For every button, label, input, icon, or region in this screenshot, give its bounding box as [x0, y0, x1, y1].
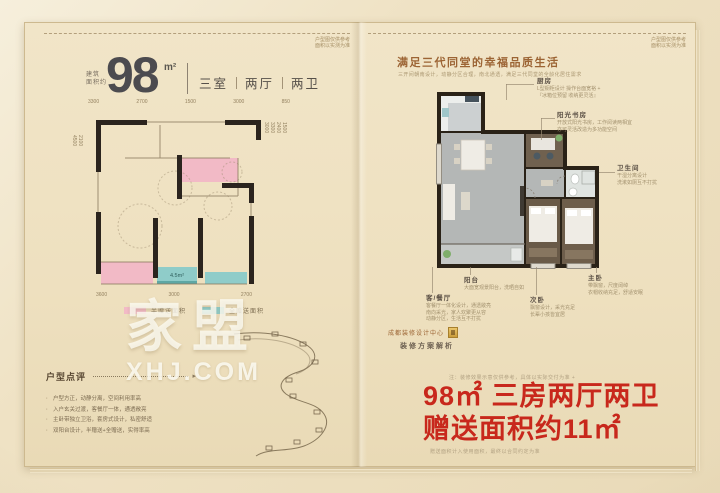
- gift-area-teal-right: [205, 272, 247, 284]
- page-crease: [351, 22, 367, 467]
- rooms-spec-baths: 两卫: [291, 73, 320, 92]
- left-page-top-rule: [44, 33, 350, 34]
- header-divider: [187, 63, 188, 94]
- area-prefix: 建筑 面积约: [86, 72, 107, 87]
- review-point: 双阳台设计，半赠送+全赠送，实得率高: [46, 426, 246, 437]
- area-unit: m²: [164, 62, 176, 73]
- seal-text: 成都装修设计中心: [388, 328, 444, 337]
- promo-line1: 98㎡ 三房两厅两卫: [423, 381, 660, 411]
- right-page-top-rule: [368, 33, 686, 34]
- rooms-spec-sep: [236, 77, 237, 89]
- callout-living-line: 动静分区，生活互不打扰: [426, 316, 491, 323]
- review-title: 户型点评: [46, 370, 86, 383]
- promo-footnote: 赠送面积计入使用面积，最终以合同约定为准: [430, 448, 540, 455]
- legend-label-half: 半赠送面积: [151, 306, 186, 315]
- legend-label-full: 全赠送面积: [229, 306, 264, 315]
- legend-swatch-pink: [124, 307, 146, 314]
- callout-second: 次卧 飘窗设计，采光充足 长辈小孩皆宜居: [530, 297, 575, 318]
- leader-bath: [599, 172, 615, 173]
- dim-top-3: 3000: [233, 99, 244, 105]
- callout-second-line: 飘窗设计，采光充足: [530, 305, 575, 312]
- callout-living: 客/餐厅 客餐厅一体化设计，通透敞亮 南向采光，家人欢聚更从容 动静分区，生活互…: [426, 295, 491, 323]
- callout-bath-name: 卫生间: [617, 165, 657, 173]
- right-page-note-line2: 面积以实测为准: [560, 43, 686, 49]
- gift-area-pink-balcony: [101, 262, 153, 284]
- window-lines: [98, 122, 251, 284]
- callout-master: 主卧 带飘窗，尺度阔绰 衣帽收纳充足，舒适安眠: [588, 275, 643, 296]
- legend-item-half: 半赠送面积: [124, 306, 186, 315]
- arrow-icon: ▸: [192, 373, 196, 380]
- callout-bath-line: 洗漱如厕互不打扰: [617, 180, 657, 187]
- callout-balcony: 阳台 大面宽观景阳台，洗晒自如: [464, 277, 524, 292]
- dim-left-1: 4500: [71, 135, 77, 255]
- legend-item-full: 全赠送面积: [202, 306, 264, 315]
- review-header: 户型点评 ▸: [46, 370, 196, 383]
- rooms-spec-halls: 两厅: [245, 73, 274, 92]
- gift-legend: 半赠送面积 全赠送面积: [124, 306, 264, 315]
- seal-row: 成都装修设计中心: [388, 327, 458, 338]
- note-above-promo: 注：装修效果示意仅供参考，具体以实际交付为准 +: [449, 374, 575, 381]
- callout-second-name: 次卧: [530, 297, 575, 305]
- callout-study-name: 阳光书房: [557, 112, 632, 120]
- callout-balcony-line: 大面宽观景阳台，洗晒自如: [464, 285, 524, 292]
- dim-top-1: 2700: [136, 99, 147, 105]
- callout-study: 阳光书房 开放式阳光书房，工作阅读两相宜 亦可灵活改造为多功能空间: [557, 112, 632, 133]
- left-page-note: 户型图仅供参考 面积以实测为准: [200, 37, 350, 49]
- brochure-photo: 户型图仅供参考 面积以实测为准 建筑 面积约 98 m² 三室 两厅 两卫 33…: [0, 0, 720, 493]
- callout-bath: 卫生间 干湿分离设计 洗漱如厕互不打扰: [617, 165, 657, 186]
- leader-study: [541, 118, 542, 140]
- dim-top-2: 1500: [185, 99, 196, 105]
- area-value: 98: [106, 50, 158, 100]
- review-point: 入户玄关过渡，客餐厅一体，通透敞亮: [46, 405, 246, 416]
- dim-top-0: 3300: [88, 99, 99, 105]
- callout-study-line: 开放式阳光书房，工作阅读两相宜: [557, 120, 632, 127]
- site-map-sketch: [224, 328, 340, 460]
- dims-top: 3300 2700 1500 3000 850: [88, 99, 290, 105]
- leader-master: [596, 267, 597, 273]
- callout-living-name: 客/餐厅: [426, 295, 491, 303]
- gift-area-pink-upper: [182, 158, 238, 182]
- furnished-floorplan: [423, 80, 613, 275]
- callout-study-line: 亦可灵活改造为多功能空间: [557, 127, 632, 134]
- rooms-spec-sep: [282, 77, 283, 89]
- callout-master-name: 主卧: [588, 275, 643, 283]
- callout-kitchen-line: L型橱柜设计 操作台面宽裕 +: [537, 86, 600, 93]
- gold-seal-icon: [448, 327, 458, 338]
- schematic-floorplan: 4.5m²: [80, 110, 330, 302]
- callout-balcony-name: 阳台: [464, 277, 524, 285]
- dim-top-4: 850: [282, 99, 290, 105]
- left-page-note-line2: 面积以实测为准: [200, 43, 350, 49]
- callout-master-line: 衣帽收纳充足，舒适安眠: [588, 290, 643, 297]
- review-points: 户型方正，动静分离，空间利用率高 入户玄关过渡，客餐厅一体，通透敞亮 主卧带独立…: [46, 394, 246, 436]
- callout-living-line: 客餐厅一体化设计，通透敞亮: [426, 303, 491, 310]
- right-page-title: 满足三代同堂的幸福品质生活: [397, 54, 560, 70]
- leader-second: [536, 267, 537, 295]
- review-rule: [93, 376, 188, 377]
- area-prefix-line1: 建筑: [86, 72, 107, 80]
- walls: [96, 120, 261, 284]
- promo-line2: 赠送面积约11㎡: [423, 414, 622, 444]
- plan-link-text: 装修方案解析: [400, 341, 454, 351]
- rooms-spec: 三室 两厅 两卫: [199, 73, 320, 92]
- leader-balcony: [470, 267, 471, 275]
- review-point: 户型方正，动静分离，空间利用率高: [46, 394, 246, 405]
- inner-area-label: 4.5m²: [170, 273, 184, 279]
- leader-study: [541, 118, 555, 119]
- leader-living: [432, 267, 433, 293]
- callout-second-line: 长辈小孩皆宜居: [530, 312, 575, 319]
- callout-kitchen: 厨房 L型橱柜设计 操作台面宽裕 + 『冰箱位预留 收纳更灵活』: [537, 78, 600, 99]
- leader-kitchen: [506, 84, 534, 85]
- area-prefix-line2: 面积约: [86, 80, 107, 88]
- right-page-subtitle: 三开间朝南设计，动静分区合理，南北通透，满足三代同堂的全龄化居住需求: [398, 71, 653, 78]
- review-point: 主卧带独立卫浴，套房式设计，私密舒适: [46, 415, 246, 426]
- callout-kitchen-name: 厨房: [537, 78, 600, 86]
- callout-kitchen-line: 『冰箱位预留 收纳更灵活』: [537, 93, 600, 100]
- rooms-spec-bedrooms: 三室: [199, 73, 228, 92]
- right-page-note: 户型图仅供参考 面积以实测为准: [560, 37, 686, 49]
- leader-kitchen: [506, 84, 507, 100]
- page-stack-edge-bottom: [30, 468, 692, 473]
- legend-swatch-teal: [202, 307, 224, 314]
- page-stack-edge-right: [695, 30, 700, 471]
